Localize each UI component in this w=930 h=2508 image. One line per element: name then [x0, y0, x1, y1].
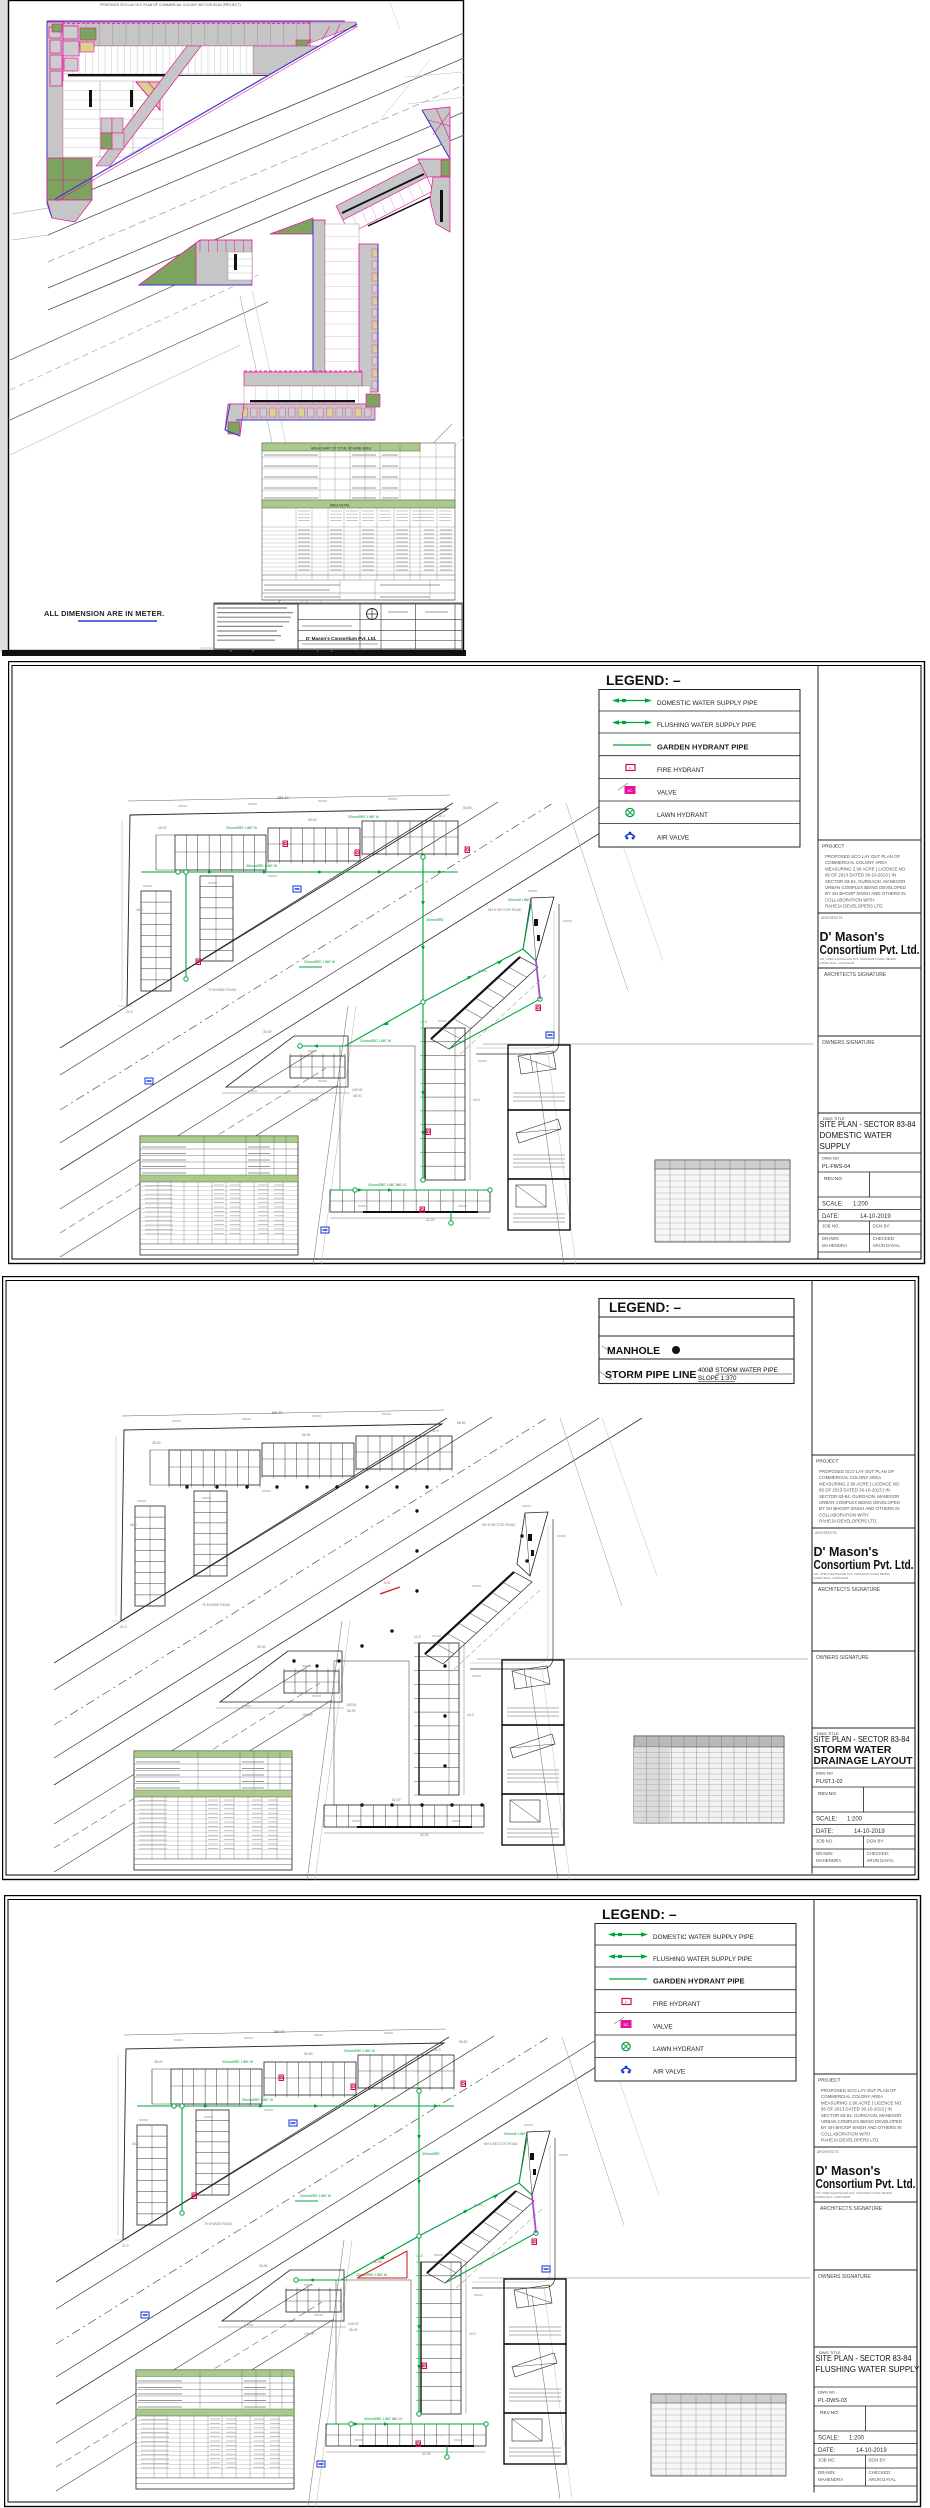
svg-text:SITE PLAN - SECTOR 83-84: SITE PLAN - SECTOR 83-84	[820, 1120, 917, 1129]
svg-text:PL-FWS-04: PL-FWS-04	[822, 1164, 850, 1170]
svg-text:PL/ST.1-02: PL/ST.1-02	[816, 1779, 843, 1785]
svg-text:X.XX: X.XX	[374, 2260, 383, 2264]
svg-text:AREA DETAIL: AREA DETAIL	[330, 504, 351, 508]
svg-text:FLUSHING WATER SUPPLY: FLUSHING WATER SUPPLY	[816, 2365, 921, 2374]
svg-text:SITE PLAN - SECTOR 83-84: SITE PLAN - SECTOR 83-84	[816, 2354, 913, 2363]
svg-text:PROPOSED SCO LAY OUT PLAN OF C: PROPOSED SCO LAY OUT PLAN OF COMMERCIAL …	[100, 3, 241, 7]
svg-text:DOMESTIC WATER: DOMESTIC WATER	[820, 1131, 893, 1140]
svg-text:DRAINAGE LAYOUT: DRAINAGE LAYOUT	[814, 1755, 914, 1767]
svg-text:ALL DIMENSION ARE IN METER.: ALL DIMENSION ARE IN METER.	[44, 609, 164, 618]
svg-text:SITE PLAN - SECTOR 83-84: SITE PLAN - SECTOR 83-84	[814, 1735, 911, 1744]
svg-text:PL-DWS-03: PL-DWS-03	[818, 2398, 847, 2404]
svg-text:SUPPLY: SUPPLY	[820, 1142, 852, 1151]
svg-text:D' Mason's Consortium Pvt. Ltd: D' Mason's Consortium Pvt. Ltd.	[306, 636, 376, 641]
